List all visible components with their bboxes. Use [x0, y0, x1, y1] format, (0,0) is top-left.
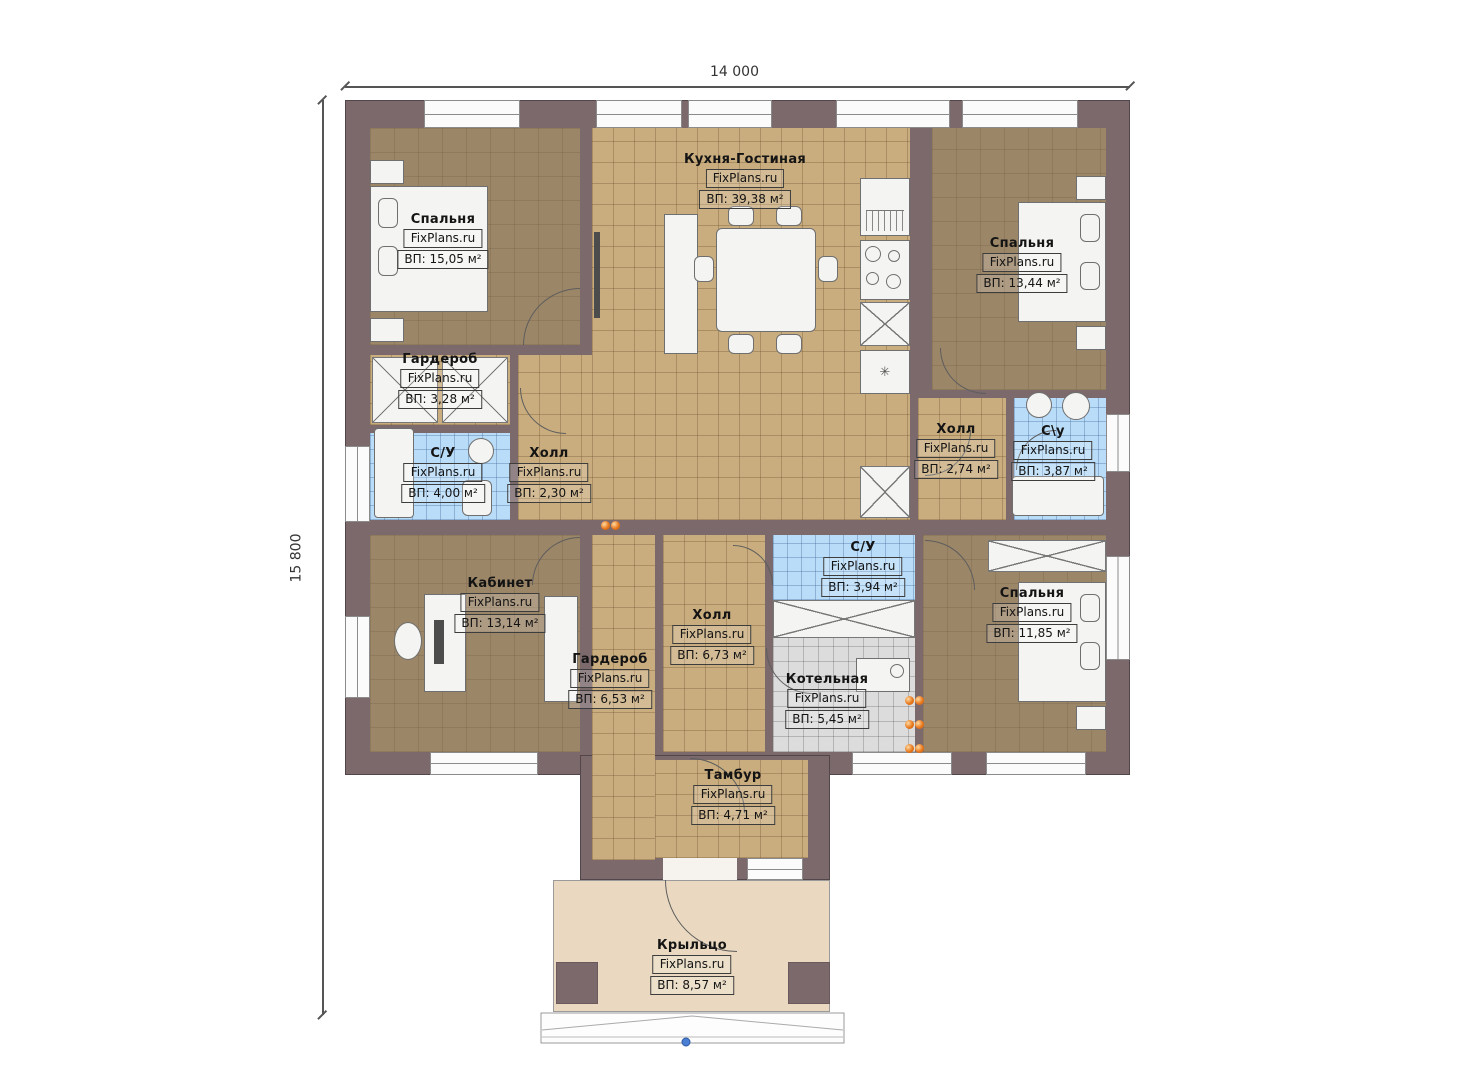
window — [962, 100, 1078, 128]
chair — [818, 256, 838, 282]
room-name: Холл — [692, 608, 731, 623]
watermark: FixPlans.ru — [401, 369, 480, 388]
chair — [694, 256, 714, 282]
radiator-icon — [915, 720, 924, 729]
tv-unit — [594, 232, 600, 318]
porch-steps — [540, 1012, 845, 1048]
room-label-wardrobe-2: Гардероб FixPlans.ru ВП: 6,53 м² — [568, 652, 652, 709]
monitor — [434, 620, 444, 664]
watermark: FixPlans.ru — [653, 955, 732, 974]
room-area: ВП: 15,05 м² — [397, 250, 488, 269]
room-label-kitchen-living: Кухня-Гостиная FixPlans.ru ВП: 39,38 м² — [684, 152, 806, 209]
window — [1106, 414, 1130, 472]
fridge-vents — [866, 210, 904, 231]
watermark: FixPlans.ru — [404, 463, 483, 482]
porch-post-right — [788, 962, 830, 1004]
room-label-bedroom-3: Спальня FixPlans.ru ВП: 11,85 м² — [986, 586, 1077, 643]
room-name: Гардероб — [572, 652, 647, 667]
room-label-bedroom-2: Спальня FixPlans.ru ВП: 13,44 м² — [976, 236, 1067, 293]
room-area: ВП: 5,45 м² — [785, 710, 869, 729]
room-name: Крыльцо — [657, 938, 727, 953]
nightstand — [1076, 706, 1106, 730]
sofa — [664, 214, 698, 354]
room-label-vestibule: Тамбур FixPlans.ru ВП: 4,71 м² — [691, 768, 775, 825]
window — [986, 752, 1086, 775]
window — [430, 752, 538, 775]
dimension-height-label: 15 800 — [289, 534, 305, 583]
pillow — [1080, 642, 1100, 670]
watermark: FixPlans.ru — [694, 785, 773, 804]
wardrobe-cabinet — [988, 540, 1106, 572]
sink — [1026, 392, 1052, 418]
window — [747, 858, 803, 880]
room-area: ВП: 8,57 м² — [650, 976, 734, 995]
nightstand — [370, 318, 404, 342]
built-in-closet — [773, 600, 915, 638]
sink — [1062, 392, 1090, 420]
kitchen-cabinet — [860, 466, 910, 518]
radiator-icon — [611, 521, 620, 530]
room-area: ВП: 4,71 м² — [691, 806, 775, 825]
room-name: Спальня — [1000, 586, 1064, 601]
stove-burner — [865, 246, 881, 262]
window — [852, 752, 952, 775]
room-area: ВП: 3,94 м² — [821, 578, 905, 597]
entry-door-opening — [663, 858, 737, 880]
room-area: ВП: 6,53 м² — [568, 690, 652, 709]
room-label-office: Кабинет FixPlans.ru ВП: 13,14 м² — [454, 576, 545, 633]
room-area: ВП: 13,14 м² — [454, 614, 545, 633]
nightstand — [370, 160, 404, 184]
radiator-icon — [915, 744, 924, 753]
chair — [776, 334, 802, 354]
dimension-width-label: 14 000 — [710, 64, 759, 80]
porch-post-left — [556, 962, 598, 1004]
room-label-bath-right: С\у FixPlans.ru ВП: 3,87 м² — [1011, 424, 1095, 481]
room-area: ВП: 4,00 м² — [401, 484, 485, 503]
room-name: Спальня — [990, 236, 1054, 251]
watermark: FixPlans.ru — [571, 669, 650, 688]
room-name: Холл — [529, 446, 568, 461]
room-name: Гардероб — [402, 352, 477, 367]
watermark: FixPlans.ru — [993, 603, 1072, 622]
stove-burner — [866, 272, 879, 285]
pillow — [1080, 262, 1100, 290]
dimension-line-left — [322, 100, 324, 1015]
room-area: ВП: 2,30 м² — [507, 484, 591, 503]
sink-bowl — [886, 274, 901, 289]
room-area: ВП: 6,73 м² — [670, 646, 754, 665]
radiator-icon — [915, 696, 924, 705]
watermark: FixPlans.ru — [1014, 441, 1093, 460]
pillow — [1080, 214, 1100, 242]
window — [688, 100, 772, 128]
window — [424, 100, 520, 128]
window — [596, 100, 682, 128]
room-area: ВП: 3,87 м² — [1011, 462, 1095, 481]
window — [345, 446, 370, 522]
room-name: Тамбур — [705, 768, 762, 783]
radiator-icon — [905, 696, 914, 705]
watermark: FixPlans.ru — [510, 463, 589, 482]
survey-marker-icon — [682, 1038, 690, 1046]
appliance-unit: ✳ — [860, 350, 910, 394]
room-label-hall-bottom: Холл FixPlans.ru ВП: 6,73 м² — [670, 608, 754, 665]
boiler-dial — [890, 664, 904, 678]
room-area: ВП: 11,85 м² — [986, 624, 1077, 643]
chair — [728, 334, 754, 354]
floor-plan: 14 000 15 800 — [0, 0, 1474, 1080]
room-area: ВП: 39,38 м² — [699, 190, 790, 209]
room-area: ВП: 2,74 м² — [914, 460, 998, 479]
watermark: FixPlans.ru — [983, 253, 1062, 272]
radiator-icon — [601, 521, 610, 530]
room-area: ВП: 13,44 м² — [976, 274, 1067, 293]
pillow — [378, 246, 398, 276]
room-label-bath-bottom: С/У FixPlans.ru ВП: 3,94 м² — [821, 540, 905, 597]
watermark: FixPlans.ru — [788, 689, 867, 708]
room-label-bath-left: С/У FixPlans.ru ВП: 4,00 м² — [401, 446, 485, 503]
room-label-hall-left: Холл FixPlans.ru ВП: 2,30 м² — [507, 446, 591, 503]
room-label-hall-right: Холл FixPlans.ru ВП: 2,74 м² — [914, 422, 998, 479]
stove-burner — [888, 250, 900, 262]
watermark: FixPlans.ru — [824, 557, 903, 576]
office-chair — [394, 622, 422, 660]
room-label-boiler: Котельная FixPlans.ru ВП: 5,45 м² — [785, 672, 869, 729]
room-name: Котельная — [786, 672, 868, 687]
room-name: Кабинет — [467, 576, 532, 591]
room-name: С/У — [850, 540, 875, 555]
window — [1106, 556, 1130, 660]
room-name: С/У — [430, 446, 455, 461]
bathtub — [1012, 476, 1104, 516]
window — [836, 100, 950, 128]
watermark: FixPlans.ru — [461, 593, 540, 612]
nightstand — [1076, 176, 1106, 200]
room-area: ВП: 3,28 м² — [398, 390, 482, 409]
window — [345, 616, 370, 698]
pillow — [1080, 594, 1100, 622]
nightstand — [1076, 326, 1106, 350]
watermark: FixPlans.ru — [706, 169, 785, 188]
watermark: FixPlans.ru — [917, 439, 996, 458]
dimension-line-top — [345, 86, 1130, 88]
radiator-icon — [905, 720, 914, 729]
room-label-porch: Крыльцо FixPlans.ru ВП: 8,57 м² — [650, 938, 734, 995]
room-label-bedroom-1: Спальня FixPlans.ru ВП: 15,05 м² — [397, 212, 488, 269]
dining-table — [716, 228, 816, 332]
room-name: Кухня-Гостиная — [684, 152, 806, 167]
room-name: Спальня — [411, 212, 475, 227]
chair — [728, 206, 754, 226]
watermark: FixPlans.ru — [673, 625, 752, 644]
room-name: С\у — [1041, 424, 1065, 439]
pillow — [378, 198, 398, 228]
radiator-icon — [905, 744, 914, 753]
kitchen-cabinet — [860, 302, 910, 346]
watermark: FixPlans.ru — [404, 229, 483, 248]
room-name: Холл — [936, 422, 975, 437]
chair — [776, 206, 802, 226]
room-label-wardrobe-1: Гардероб FixPlans.ru ВП: 3,28 м² — [398, 352, 482, 409]
